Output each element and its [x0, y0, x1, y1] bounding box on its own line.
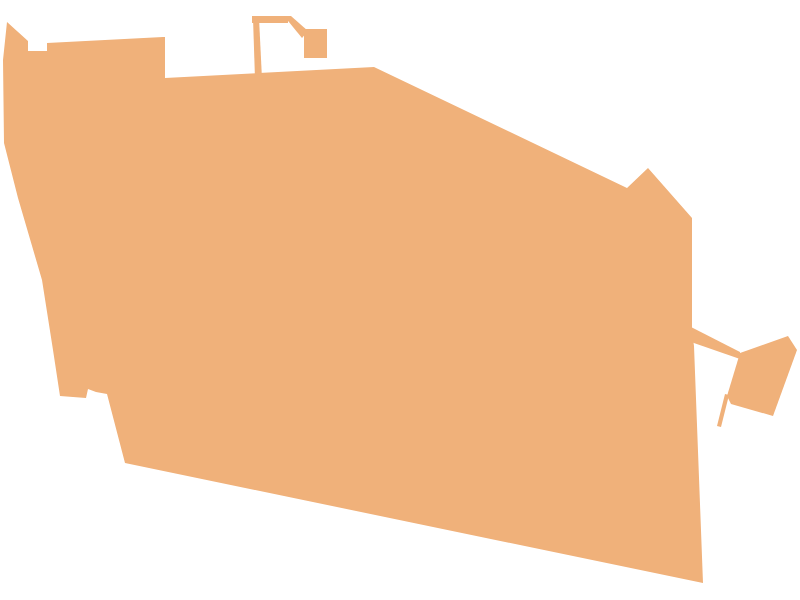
north-square-polygon: [304, 29, 327, 58]
east-spike-polygon: [717, 394, 729, 427]
main-body-polygon: [3, 22, 703, 583]
north-bar-polygon: [252, 16, 288, 23]
region-map-svg: [0, 0, 800, 600]
east-piece-polygon: [727, 336, 797, 416]
map-canvas: [0, 0, 800, 600]
east-bridge-polygon: [691, 327, 740, 359]
north-pole-polygon: [253, 18, 262, 79]
